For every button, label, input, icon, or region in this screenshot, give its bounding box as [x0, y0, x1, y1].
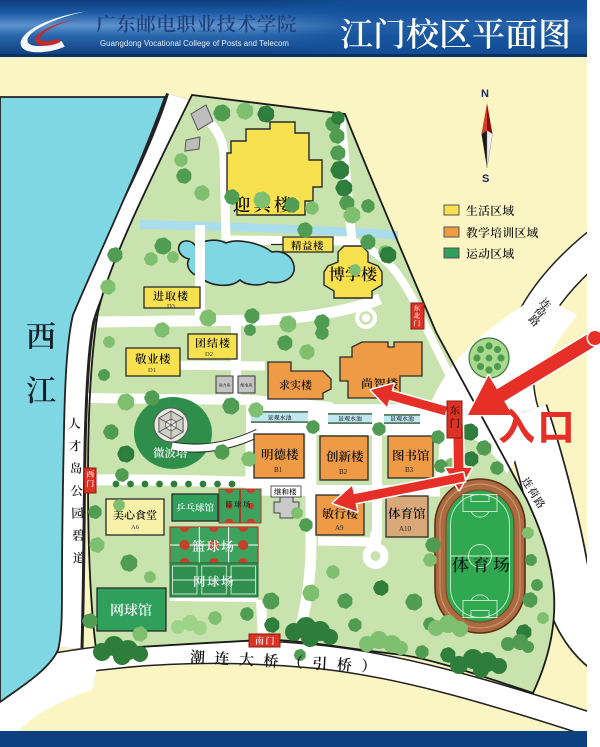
- svg-text:D3: D3: [167, 303, 175, 310]
- svg-text:Guangdong Vocational College o: Guangdong Vocational College of Posts an…: [100, 39, 289, 48]
- svg-text:N: N: [481, 88, 489, 100]
- svg-text:A9: A9: [335, 524, 344, 532]
- svg-text:A10: A10: [399, 525, 412, 533]
- svg-text:S: S: [482, 173, 489, 185]
- svg-text:B1: B1: [274, 466, 283, 474]
- svg-text:B3: B3: [405, 466, 414, 474]
- svg-text:A6: A6: [131, 524, 140, 531]
- svg-text:D1: D1: [148, 367, 156, 374]
- svg-text:D2: D2: [205, 351, 213, 358]
- svg-text:B2: B2: [339, 468, 348, 476]
